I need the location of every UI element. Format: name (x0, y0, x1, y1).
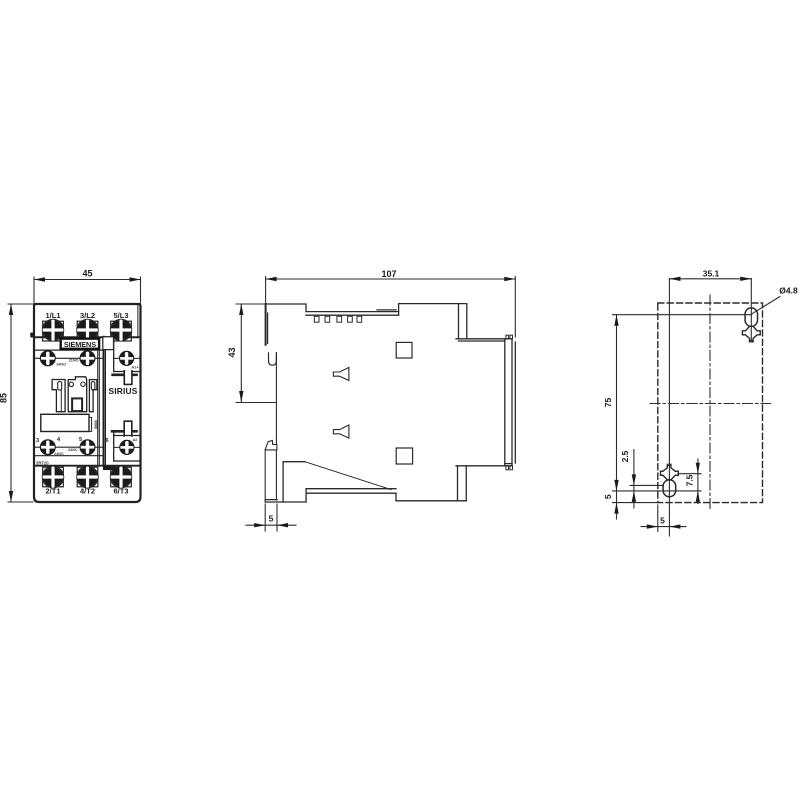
svg-text:45: 45 (82, 269, 92, 279)
svg-text:5: 5 (603, 494, 613, 499)
svg-text:4: 4 (57, 437, 61, 443)
svg-text:Ø4.8: Ø4.8 (779, 286, 798, 296)
svg-text:3RT20: 3RT20 (36, 460, 49, 465)
svg-text:6: 6 (105, 438, 108, 444)
svg-text:75: 75 (603, 398, 613, 408)
svg-text:107: 107 (381, 269, 396, 279)
svg-text:2/T1: 2/T1 (45, 487, 60, 496)
svg-text:A1+: A1+ (132, 366, 140, 370)
svg-text:5: 5 (269, 514, 274, 524)
svg-text:35.1: 35.1 (703, 269, 720, 279)
svg-text:14NO: 14NO (56, 362, 66, 366)
svg-text:4/T2: 4/T2 (80, 487, 95, 496)
svg-text:A2: A2 (133, 438, 138, 442)
svg-text:23NC: 23NC (68, 448, 78, 452)
svg-text:85: 85 (0, 393, 9, 403)
svg-text:SIRIUS: SIRIUS (108, 386, 137, 396)
svg-text:5: 5 (660, 515, 665, 525)
svg-text:3/L2: 3/L2 (80, 311, 95, 320)
svg-text:43: 43 (227, 347, 237, 357)
svg-text:7.5: 7.5 (684, 474, 694, 486)
svg-text:2.5: 2.5 (620, 450, 630, 462)
svg-text:21NO: 21NO (69, 358, 79, 362)
svg-text:1/L1: 1/L1 (45, 311, 60, 320)
svg-text:SIEMENS: SIEMENS (64, 340, 96, 349)
svg-text:6/T3: 6/T3 (113, 487, 128, 496)
svg-text:5/L3: 5/L3 (113, 311, 128, 320)
svg-text:3: 3 (36, 438, 39, 444)
